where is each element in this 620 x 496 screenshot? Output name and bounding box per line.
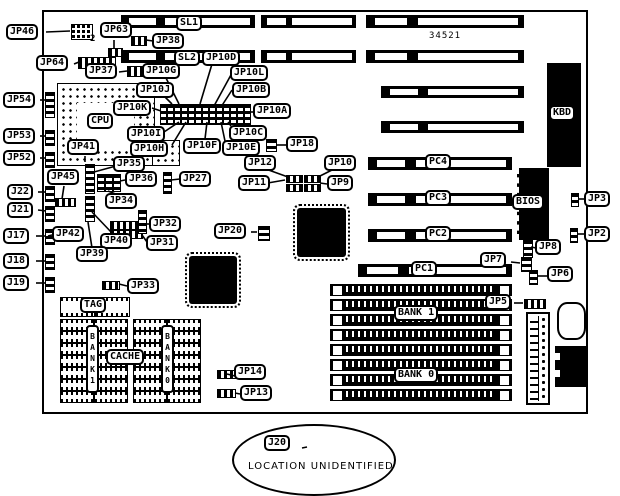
isa-slot-sl1-seg3 [366,15,524,28]
jp54-jumper [45,92,55,118]
jp2-jumper [570,228,578,243]
label-jp46: JP46 [6,24,38,40]
label-pc4: PC4 [425,154,451,170]
jumper-block [223,104,230,125]
j22-jumper [45,186,55,202]
label-kbd: KBD [549,105,575,121]
jp10-jumper [304,175,321,183]
jp36-bar3 [113,174,121,192]
label-jp3: JP3 [584,191,610,207]
simm-socket [330,389,512,401]
label-jp54: JP54 [3,92,35,108]
label-jp34: JP34 [105,193,137,209]
label-tag: TAG [80,297,106,313]
jumper-block [209,104,216,125]
label-jp10f: JP10F [183,138,221,154]
label-jp39: JP39 [76,246,108,262]
jumper-block [216,104,223,125]
jp27-jumper [163,172,172,194]
label-cpu: CPU [87,113,113,129]
label-jp45: JP45 [47,169,79,185]
label-simm-bank0: BANK 0 [394,367,438,383]
label-jp36: JP36 [125,171,157,187]
label-j18: J18 [3,253,29,269]
qfp-chip-1 [297,208,346,257]
label-jp27: JP27 [179,171,211,187]
j19-jumper [45,277,55,293]
label-jp10: JP10 [324,155,356,171]
label-jp10e: JP10E [222,140,260,156]
power-connector [526,312,550,405]
cache-chip [133,391,167,403]
label-j21: J21 [7,202,33,218]
isa-slot-sl2-seg2 [261,50,356,63]
jumper-block [237,104,244,125]
isa-slot-row3 [381,86,524,98]
label-jp13: JP13 [240,385,272,401]
board-number: 34521 [429,31,461,41]
jumper-block [202,104,209,125]
simm-socket [330,284,512,296]
jp13-jumper [217,389,236,398]
jp36-bar2 [105,174,113,192]
jumper-block [174,104,181,125]
jp38-jumper [131,36,147,46]
label-jp35: JP35 [113,156,145,172]
label-jp53: JP53 [3,128,35,144]
label-jp12: JP12 [244,155,276,171]
battery [557,302,586,340]
label-jp10l: JP10L [230,65,268,81]
jp52-jumper [45,152,55,168]
label-bios: BIOS [512,194,544,210]
label-jp41: JP41 [67,139,99,155]
jumper-block [195,104,202,125]
header-mid [138,210,147,234]
label-pc2: PC2 [425,226,451,242]
label-simm-bank1: BANK 1 [394,305,438,321]
label-pc3: PC3 [425,190,451,206]
jp5-jumper [524,299,546,309]
jp12-jumper [286,175,303,183]
jp40-header [85,196,95,222]
jumper-block [244,104,251,125]
label-jp8: JP8 [535,239,561,255]
label-cache-bank1: BANK1 [86,325,99,393]
label-jp7: JP7 [480,252,506,268]
jp18-jumper [266,139,277,152]
jp9-jumper [304,184,321,192]
cache-chip [94,379,128,391]
label-jp10a: JP10A [253,103,291,119]
j18-jumper [45,254,55,270]
label-j22: J22 [7,184,33,200]
label-jp32: JP32 [149,216,181,232]
label-jp10b: JP10B [232,82,270,98]
qfp-chip-2 [189,256,237,304]
cache-chip [167,391,201,403]
jumper-block [167,104,174,125]
jumper-block [188,104,195,125]
label-jp10c: JP10C [229,125,267,141]
cache-chip [94,367,128,379]
label-sl1: SL1 [176,15,202,31]
jp6-jumper [529,270,538,285]
din-connector [555,346,586,387]
label-jp10j: JP10J [136,82,174,98]
label-jp52: JP52 [3,150,35,166]
note-text: LOCATION UNIDENTIFIED [248,461,394,472]
jumper-block [230,104,237,125]
cache-chip [94,319,128,331]
isa-slot-sl2-seg3 [366,50,524,63]
note-ellipse [232,424,396,496]
label-cache: CACHE [106,349,144,365]
jumper-block [181,104,188,125]
label-j17: J17 [3,228,29,244]
label-pc1: PC1 [411,261,437,277]
label-jp46-pins: 2 [90,34,95,44]
label-jp9: JP9 [327,175,353,191]
label-cache-bank0: BANK0 [161,325,174,393]
j21-jumper [45,206,55,222]
jp8-jumper [523,240,533,258]
cache-chip [94,391,128,403]
label-jp38: JP38 [152,33,184,49]
label-j19: J19 [3,275,29,291]
label-j20: J20 [264,435,290,451]
label-jp10g: JP10G [142,63,180,79]
label-jp10d: JP10D [202,50,240,66]
label-jp5: JP5 [485,294,511,310]
label-jp6: JP6 [547,266,573,282]
label-jp42: JP42 [52,226,84,242]
label-jp10h: JP10H [130,141,168,157]
label-jp11: JP11 [238,175,270,191]
jp33-jumper [102,281,120,290]
jp20-jumper [258,226,270,241]
jumper-block [160,104,167,125]
label-jp64: JP64 [36,55,68,71]
motherboard-jumper-diagram: JP46 2 JP63 JP38 JP64 JP37 SL1 SL2 JP10D… [0,0,620,496]
label-jp37: JP37 [85,63,117,79]
label-jp14: JP14 [234,364,266,380]
label-jp18: JP18 [286,136,318,152]
simm-socket [330,344,512,356]
label-jp2: JP2 [584,226,610,242]
label-jp63: JP63 [100,22,132,38]
label-jp33: JP33 [127,278,159,294]
label-jp10k: JP10K [113,100,151,116]
jp39-header [85,164,95,194]
jp36-bar1 [97,174,105,192]
jp63-jumper [108,48,123,57]
jp3-jumper [571,193,579,207]
simm-socket [330,329,512,341]
label-jp31: JP31 [146,235,178,251]
label-jp20: JP20 [214,223,246,239]
isa-slot-row4 [381,121,524,133]
jp53-jumper [45,130,55,146]
isa-slot-sl1-seg2 [261,15,356,28]
jp11-jumper [286,184,303,192]
cache-chip [94,331,128,343]
label-jp10i: JP10I [127,126,165,142]
jp45-header [55,198,76,207]
